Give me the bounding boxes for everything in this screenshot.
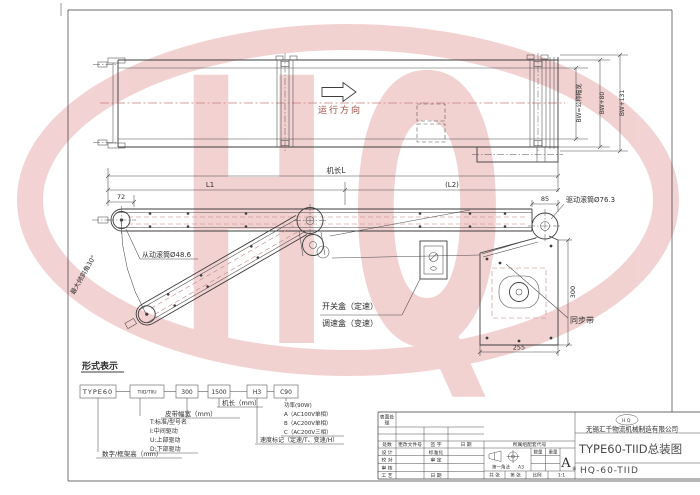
power-label-c: C（AC200V三相） (284, 428, 332, 436)
weight-label: 重量 (549, 449, 558, 456)
designation-box-length: 1500 (211, 389, 226, 396)
switch-box-label: 开关盒（定速） (322, 301, 378, 311)
scale-label: 比例 (533, 472, 542, 479)
sheet-number: 第 张 (510, 472, 521, 479)
drawing-title: TYPE60-TIID总装图 (578, 442, 682, 456)
scale-value: 1:1 (558, 473, 565, 479)
speed-box-label: 调速盒（变速） (322, 318, 378, 328)
dim-85: 85 (541, 195, 549, 203)
dim-l1: L1 (206, 181, 214, 189)
role-date: 日 期 (430, 473, 441, 479)
power-label-b: B（AC200V单相） (284, 419, 332, 427)
driven-roller-label: 从动滚筒Ø48.6 (142, 250, 192, 259)
projection-label: 第一角法 (492, 464, 510, 471)
drawing-sheet: HQ (0, 0, 700, 495)
role-process: 工 艺 (381, 473, 392, 479)
rev-header-count: 处数 (382, 441, 392, 448)
speed-mark-label: 速度标记（定速/T、变速/H） (260, 436, 338, 444)
dim-72: 72 (117, 193, 125, 201)
power-label-a: A（AC100V单相） (284, 410, 332, 418)
role-design: 设 计 (381, 449, 392, 456)
belt-width-label: 皮带幅宽（mm） (165, 409, 217, 418)
role-standard: 标准化 (429, 449, 444, 456)
drive-type-u: U:上部驱动 (150, 436, 180, 444)
drive-type-d: D:下部驱动 (150, 445, 181, 453)
grade-sub: 级 (573, 466, 577, 471)
total-sheets: 共 张 (489, 472, 500, 479)
first-angle-projection-icon (489, 450, 520, 463)
role-review: 审 核 (381, 464, 392, 471)
run-direction-label: 运行方向 (318, 104, 362, 116)
dim-machine-length: 机长L (326, 165, 346, 175)
company-logo-text: HQ (622, 418, 632, 424)
drawing-number: HQ-60-TIID (580, 466, 639, 476)
watermark-text: HQ (177, 1, 523, 430)
role-approve: 审 定 (430, 457, 441, 464)
surface-treatment-1: 表面处 (380, 414, 395, 421)
timing-belt-label: 同步带 (570, 316, 594, 325)
cad-drawing: HQ (0, 0, 700, 495)
power-label-0: 功率(90W) (284, 401, 312, 409)
designation-box-power: C90 (280, 389, 292, 396)
designation-heading: 形式表示 (82, 360, 118, 372)
belong-code-label: 所属组配套代号 (513, 441, 547, 448)
rev-header-sign: 签 字 (430, 441, 441, 448)
grade-letter: A (560, 456, 571, 471)
rev-header-file: 更改文件号 (398, 441, 422, 448)
designation-box-type: TYPE60 (82, 388, 113, 396)
dim-overall-width: BW+131 (619, 90, 626, 116)
dim-belt-width: BW=公称幅宽 (575, 84, 583, 123)
dim-l2: (L2) (445, 181, 459, 189)
designation-box-speed: H3 (253, 389, 262, 396)
drive-type-i: I:中间驱动 (150, 427, 178, 435)
company-name: 无锡汇千物流机械制造有限公司 (586, 425, 678, 434)
surface-treatment-2: 理 (385, 421, 390, 427)
dim-frame-width: BW+80 (599, 92, 606, 115)
designation-box-series: TIID/TIIU (136, 390, 156, 396)
machine-length-label: 机长（mm） (222, 398, 261, 407)
dim-255: 255 (513, 344, 525, 352)
designation-box-width: 300 (181, 389, 193, 396)
drive-type-t: T:标准/型号名 (149, 418, 187, 426)
paper-size: A3 (518, 465, 524, 471)
hq-watermark: HQ (30, 1, 666, 430)
dim-300: 300 (569, 286, 577, 298)
qty-label: 数量 (534, 449, 543, 456)
rev-header-date: 日 期 (460, 442, 471, 448)
role-check: 校 对 (381, 457, 392, 464)
drive-roller-label: 驱动滚筒Ø76.3 (566, 195, 615, 204)
